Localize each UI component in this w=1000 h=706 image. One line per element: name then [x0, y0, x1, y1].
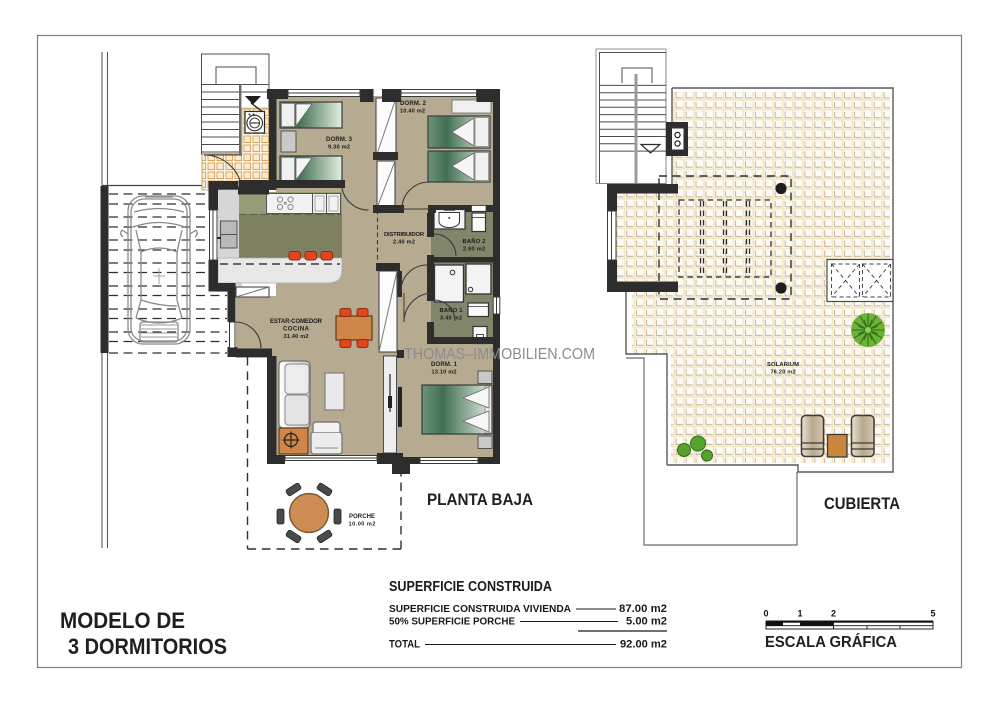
- svg-text:10.40 m2: 10.40 m2: [400, 109, 425, 115]
- svg-text:3 DORMITORIOS: 3 DORMITORIOS: [68, 634, 227, 659]
- svg-text:1: 1: [797, 609, 802, 619]
- svg-text:ESTAR-COMEDOR: ESTAR-COMEDOR: [270, 319, 323, 325]
- svg-text:SUPERFICIE CONSTRUIDA VIVIENDA: SUPERFICIE CONSTRUIDA VIVIENDA: [389, 603, 571, 615]
- svg-text:50% SUPERFICIE PORCHE: 50% SUPERFICIE PORCHE: [389, 616, 515, 628]
- svg-text:MODELO DE: MODELO DE: [60, 608, 185, 633]
- svg-text:9.30 m2: 9.30 m2: [328, 145, 350, 151]
- svg-text:92.00 m2: 92.00 m2: [620, 639, 667, 651]
- svg-text:31.40 m2: 31.40 m2: [284, 334, 309, 340]
- svg-text:0: 0: [763, 609, 768, 619]
- svg-text:BAÑO 2: BAÑO 2: [463, 238, 486, 245]
- svg-text:ESCALA GRÁFICA: ESCALA GRÁFICA: [765, 634, 897, 651]
- svg-text:DISTRIBUIDOR: DISTRIBUIDOR: [384, 232, 425, 238]
- svg-text:13.10 m2: 13.10 m2: [432, 370, 457, 376]
- svg-text:THOMAS–IMMOBILIEN.COM: THOMAS–IMMOBILIEN.COM: [404, 346, 595, 363]
- svg-text:DORM. 2: DORM. 2: [400, 101, 427, 107]
- svg-text:DORM. 3: DORM. 3: [326, 137, 353, 143]
- svg-text:PLANTA BAJA: PLANTA BAJA: [427, 490, 533, 509]
- svg-text:10.00 m2: 10.00 m2: [349, 522, 376, 528]
- svg-text:76.20 m2: 76.20 m2: [771, 370, 796, 376]
- svg-text:2.60 m2: 2.60 m2: [463, 247, 485, 253]
- svg-text:5: 5: [930, 609, 935, 619]
- svg-text:3.40 m2: 3.40 m2: [440, 316, 462, 322]
- svg-text:BAÑO 1: BAÑO 1: [440, 307, 464, 314]
- svg-text:5.00 m2: 5.00 m2: [626, 616, 667, 628]
- svg-text:SOLARIUM: SOLARIUM: [767, 362, 799, 368]
- svg-text:CUBIERTA: CUBIERTA: [824, 494, 900, 513]
- svg-text:PORCHE: PORCHE: [349, 514, 375, 520]
- svg-text:2.40 m2: 2.40 m2: [393, 240, 415, 246]
- svg-text:COCINA: COCINA: [283, 327, 310, 333]
- svg-text:2: 2: [831, 609, 836, 619]
- svg-text:TOTAL: TOTAL: [389, 639, 420, 651]
- svg-text:SUPERFICIE CONSTRUIDA: SUPERFICIE CONSTRUIDA: [389, 579, 552, 595]
- svg-text:87.00 m2: 87.00 m2: [619, 603, 667, 615]
